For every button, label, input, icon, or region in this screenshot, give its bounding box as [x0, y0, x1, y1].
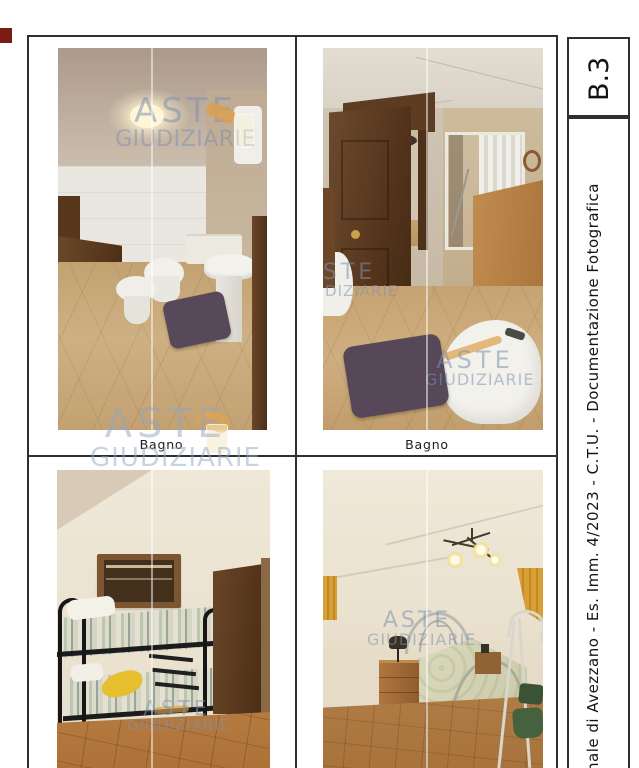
- photo-caption: Bagno: [298, 437, 556, 452]
- bath-rug: [342, 333, 450, 419]
- side-title: nale di Avezzano - Es. Imm. 4/2023 - C.T…: [584, 183, 602, 768]
- window-bar: [106, 578, 172, 580]
- chair-seat: [512, 707, 543, 739]
- grid-column-divider: [295, 35, 297, 768]
- chandelier-bulb: [489, 554, 501, 566]
- bidet-base: [124, 296, 150, 324]
- door-frame-right: [252, 216, 267, 430]
- scan-crease-line: [426, 48, 428, 430]
- door: [213, 564, 263, 714]
- grid-row-divider: [27, 455, 558, 457]
- photo-bathroom-1: ASTE GIUDIZIARIE: [58, 48, 267, 430]
- scanned-document-page: ASTE GIUDIZIARIE Bagno: [0, 0, 639, 768]
- nightstand-small: [475, 652, 501, 674]
- chandelier-bulb: [447, 552, 463, 568]
- side-title-box: nale di Avezzano - Es. Imm. 4/2023 - C.T…: [567, 117, 630, 768]
- glass-icon: [206, 424, 228, 454]
- scan-crease-line: [151, 48, 153, 430]
- photo-bedroom-1: ASTE GIUDIZIARIE: [57, 470, 270, 768]
- sheet-code-box: B.3: [567, 37, 630, 117]
- curtain-left: [323, 576, 337, 620]
- photo-bedroom-2: ASTE GIUDIZIARIE: [323, 470, 543, 768]
- scan-mark: [0, 28, 12, 43]
- nightstand-lamp: [481, 644, 489, 653]
- photo-bathroom-2: ASTE GIUDIZIARIE ASTE GIUDIZIARIE: [323, 48, 543, 430]
- glass-icon: [234, 114, 254, 148]
- door-panel: [341, 140, 389, 220]
- mirror-frame: [323, 188, 335, 288]
- sheet-code: B.3: [584, 57, 615, 101]
- chandelier-stem: [471, 528, 473, 542]
- chair-back: [518, 683, 543, 705]
- photo-caption: Bagno: [29, 437, 294, 452]
- pillow-white: [70, 663, 103, 683]
- chandelier-bulb: [473, 542, 489, 558]
- table-lamp-stem: [397, 648, 399, 662]
- nightstand: [379, 660, 419, 710]
- towel-ring: [523, 150, 541, 172]
- scan-crease-line: [151, 470, 153, 768]
- door-frame: [261, 558, 270, 726]
- scan-crease-line: [426, 470, 428, 768]
- window-reflection: [106, 565, 172, 568]
- door-handle: [351, 230, 360, 239]
- ceiling-lamp: [130, 104, 164, 128]
